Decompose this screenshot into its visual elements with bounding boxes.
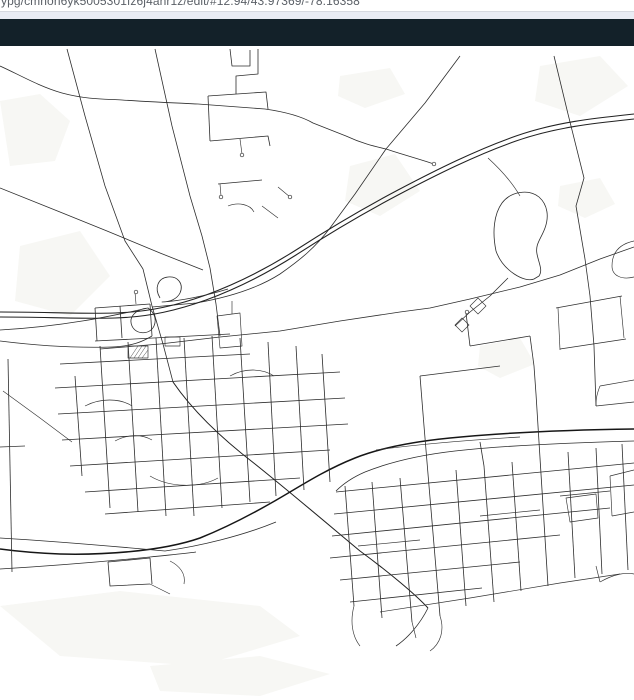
- top-cluster-street: [208, 96, 210, 141]
- north-appendage-street: [150, 304, 152, 336]
- grid-street-v1: [345, 486, 354, 606]
- east-suburb-street: [596, 566, 600, 582]
- grid-south-stub-3: [430, 616, 442, 651]
- east-suburb-street: [610, 470, 634, 476]
- rural-road-north-b: [155, 49, 210, 268]
- landuse-patch: [535, 56, 628, 116]
- browser-chrome: ypg/cmnon6yk5005301fz6j4ahr1z/edit/#12.9…: [0, 0, 634, 19]
- landuse-patch: [0, 94, 70, 166]
- grid-street-v11: [622, 444, 628, 570]
- map-canvas[interactable]: [0, 46, 634, 700]
- bottom-left-stub: [150, 584, 170, 594]
- landuse-patch: [345, 154, 420, 216]
- landuse-patch: [15, 231, 110, 316]
- subdivision-street: [95, 334, 230, 341]
- cul-de-sac-dot: [134, 290, 138, 294]
- east-edge-hook: [612, 241, 634, 278]
- studio-header-toolbar: [0, 19, 634, 46]
- east-suburb-street: [610, 476, 612, 516]
- subdivision-crescent: [230, 370, 274, 376]
- east-suburb-street: [596, 386, 600, 406]
- mid-connector: [466, 313, 470, 346]
- subdivision-street: [100, 346, 110, 508]
- subdivision-street: [60, 354, 250, 364]
- division-connector: [210, 268, 220, 336]
- grid-v-north-1: [424, 426, 428, 474]
- corridor-road-west-lower: [0, 552, 196, 569]
- landuse-patch: [338, 68, 405, 108]
- mid-connector: [420, 376, 424, 426]
- subdivision-street: [296, 346, 304, 490]
- east-suburb-street: [600, 380, 634, 386]
- subdivision-street: [268, 342, 276, 496]
- cul-de-sac-dot: [240, 153, 244, 157]
- top-cluster-stub: [278, 187, 290, 197]
- top-cluster-stub: [220, 184, 221, 196]
- grid-street-v2: [372, 482, 382, 618]
- sweep-tail: [396, 608, 428, 646]
- browser-url-bar[interactable]: ypg/cmnon6yk5005301fz6j4ahr1z/edit/#12.9…: [0, 0, 634, 11]
- west-edge-vertical: [8, 359, 12, 572]
- north-appendage-street: [95, 304, 150, 308]
- bottom-left-hook: [170, 561, 184, 584]
- subdivision-street: [70, 450, 330, 466]
- frontage-road-west: [0, 336, 152, 347]
- bottom-left-street: [150, 558, 152, 584]
- west-edge-stub: [0, 446, 25, 447]
- pond-north-link: [488, 158, 520, 196]
- grid-v-north-2: [534, 366, 540, 458]
- grid-street-v6: [484, 466, 494, 602]
- top-cluster-street: [218, 180, 262, 184]
- top-cluster-hook: [262, 206, 278, 218]
- corridor-road-west-upper: [0, 522, 276, 551]
- top-cluster-hook: [228, 204, 254, 212]
- school-building-hatch: [130, 346, 148, 358]
- east-suburb-street: [560, 339, 626, 349]
- cul-de-sac-dot: [288, 195, 292, 199]
- subdivision-crescent: [85, 400, 132, 406]
- top-cluster-street: [208, 92, 268, 109]
- landuse-patch: [478, 338, 535, 378]
- subdivision-street: [128, 342, 138, 512]
- grid-v-north-3: [480, 442, 484, 466]
- top-cluster-street: [230, 49, 250, 66]
- north-appendage-street: [120, 306, 122, 338]
- subdivision-street: [184, 338, 194, 516]
- top-cluster-street: [236, 49, 258, 94]
- landuse-patch: [0, 591, 300, 666]
- grid-street-v7: [512, 462, 521, 591]
- subdivision-street: [105, 502, 270, 514]
- grid-street-v10: [596, 448, 602, 574]
- cul-de-sac-dot: [219, 195, 223, 199]
- grid-street-h4: [330, 535, 560, 558]
- grid-street-h5: [340, 562, 520, 580]
- top-cluster-stub: [240, 139, 242, 154]
- east-suburb-street: [600, 573, 634, 582]
- interchange-east-block: [217, 313, 242, 348]
- subdivision-street: [322, 354, 330, 482]
- grid-street-v8: [540, 458, 548, 586]
- east-suburb-street: [556, 296, 622, 308]
- grid-street-h2: [334, 485, 634, 514]
- grid-inner-1: [358, 540, 420, 546]
- burnham-through-interchange: [143, 269, 173, 382]
- chrome-strip: [0, 12, 634, 19]
- cul-de-sac-dot: [432, 162, 436, 166]
- pond-loop: [494, 192, 547, 280]
- small-building-outline: [165, 337, 180, 346]
- grid-street-h6: [350, 588, 482, 602]
- subdivision-street: [75, 376, 82, 476]
- west-diagonal: [3, 391, 72, 442]
- grid-street-v5: [456, 470, 466, 606]
- east-suburb-street: [596, 402, 634, 406]
- grid-inner-2: [480, 510, 540, 516]
- bottom-left-street: [108, 562, 150, 586]
- subdivision-street: [240, 338, 250, 502]
- east-suburb-street: [612, 512, 634, 516]
- cul-de-sac-dot: [465, 310, 469, 314]
- cross-town-road: [100, 247, 634, 349]
- landuse-patch: [558, 178, 615, 218]
- east-suburb-street: [620, 296, 624, 338]
- grid-south-edge: [380, 574, 620, 612]
- subdivision-street: [156, 338, 166, 516]
- sweep-road-southeast: [173, 382, 428, 608]
- map-roads-svg: [0, 46, 634, 700]
- east-suburb-street: [558, 308, 560, 350]
- subdivision-street: [212, 336, 222, 508]
- east-vertical-south: [585, 259, 596, 406]
- grid-street-v4: [428, 474, 440, 616]
- grid-south-stub-1: [352, 606, 360, 646]
- interchange-loop-north: [157, 277, 228, 302]
- url-text: ypg/cmnon6yk5005301fz6j4ahr1z/edit/#12.9…: [0, 0, 634, 8]
